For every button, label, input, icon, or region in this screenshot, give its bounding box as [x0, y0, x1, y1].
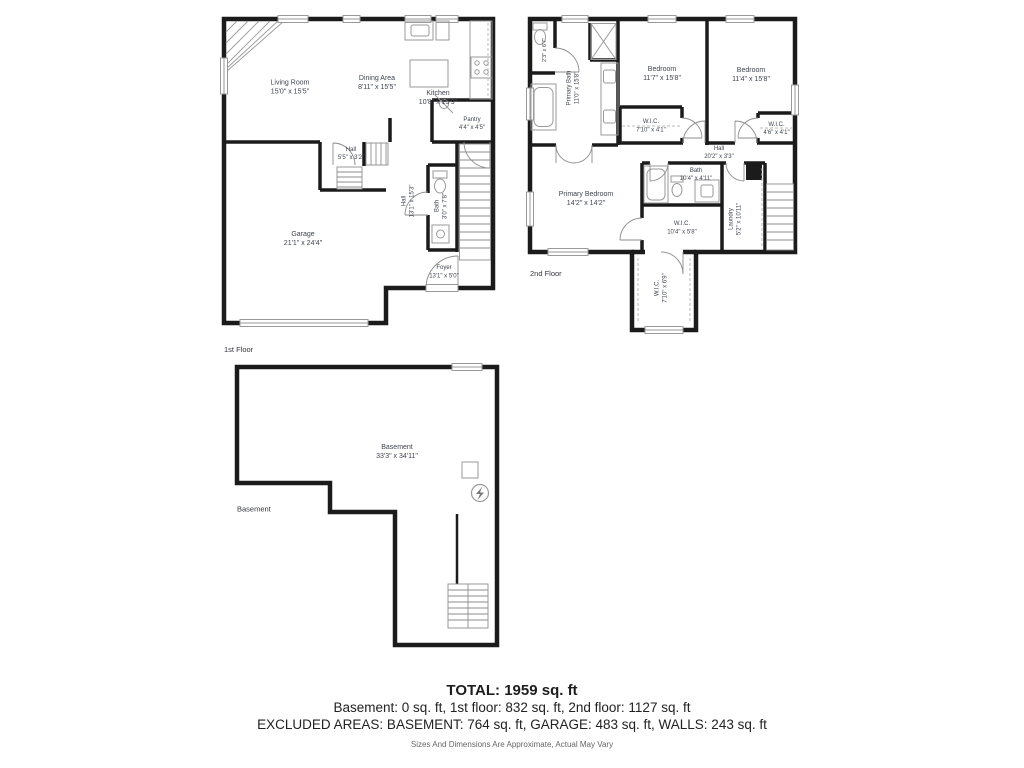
svg-text:7'10" x 6'9": 7'10" x 6'9"	[663, 273, 669, 303]
floor-areas: Basement: 0 sq. ft, 1st floor: 832 sq. f…	[0, 699, 1024, 716]
stairs-down-small	[337, 167, 362, 189]
svg-text:3'0" x 7'8": 3'0" x 7'8"	[443, 193, 449, 219]
second-floor-label: 2nd Floor	[530, 269, 562, 278]
toilet-tank-icon	[533, 23, 547, 30]
room-label-foyer-dims: 13'1" x 5'0"	[429, 274, 459, 280]
second-floor-plan: 2'3" x 6'7" Primary Bath 11'0" x 15'8" B…	[527, 16, 799, 334]
room-label-bath2-name: Bath	[690, 168, 702, 174]
stairs-up-small	[366, 143, 388, 165]
sink-icon	[604, 70, 616, 83]
svg-text:Hall: Hall	[402, 196, 408, 206]
room-label-wic2-dims: 4'6" x 4'1"	[763, 130, 789, 136]
hatch-area	[226, 21, 284, 72]
room-label-bedroom2-name: Bedroom	[737, 67, 766, 74]
room-label-wic4-vertical: W.I.C. 7'10" x 6'9"	[655, 273, 669, 303]
room-label-kitchen-name: Kitchen	[426, 90, 449, 97]
sink-icon	[604, 110, 616, 123]
svg-text:11'0" x 15'8": 11'0" x 15'8"	[575, 72, 581, 104]
room-label-pantry-dims: 4'4" x 4'5"	[459, 125, 485, 131]
room-label-hall2-name: Hall	[714, 146, 724, 152]
room-label-bedroom2-dims: 11'4" x 15'8"	[732, 76, 770, 83]
toilet-icon	[672, 184, 682, 197]
room-label-living-dims: 15'0" x 15'5"	[271, 89, 310, 96]
room-label-primarybedroom-dims: 14'2" x 14'2"	[567, 200, 606, 207]
room-label-wic3-dims: 10'4" x 5'8"	[667, 230, 697, 236]
room-label-garage-name: Garage	[291, 231, 314, 238]
room-label-primarybath-vertical: Primary Bath 11'0" x 15'8"	[567, 71, 581, 106]
svg-text:Primary Bath: Primary Bath	[567, 71, 573, 106]
basement-openings	[452, 364, 482, 371]
room-label-living-name: Living Room	[271, 80, 310, 87]
room-label-bath-vertical: Bath 3'0" x 7'8"	[435, 193, 449, 219]
stairs-second	[767, 184, 794, 250]
room-label-hallsmall-dims: 5'5" x 3'2"	[338, 155, 364, 161]
bath-sink-icon	[437, 230, 445, 238]
sink-icon	[411, 25, 429, 36]
room-label-hall2-dims: 20'2" x 3'3"	[704, 154, 734, 160]
stove-icon	[471, 57, 492, 78]
room-label-bedroom1-name: Bedroom	[648, 66, 677, 73]
room-label-wic1-dims: 7'10" x 4'1"	[636, 128, 666, 134]
room-label-wic3-name: W.I.C.	[674, 221, 691, 227]
room-label-dining-dims: 8'11" x 15'5"	[358, 84, 396, 91]
second-bath-fixtures	[644, 166, 719, 203]
stairs-main	[460, 144, 491, 260]
svg-text:Laundry: Laundry	[729, 208, 735, 230]
floor-plan-canvas: Living Room 15'0" x 15'5" Dining Area 8'…	[0, 0, 1024, 768]
total-area: TOTAL: 1959 sq. ft	[0, 682, 1024, 699]
basement-plan: Basement 33'3" x 34'11" Basement	[237, 364, 497, 646]
excluded-areas: EXCLUDED AREAS: BASEMENT: 764 sq. ft, GA…	[0, 716, 1024, 733]
room-label-garage-dims: 21'1" x 24'4"	[284, 240, 323, 247]
room-label-kitchen-dims: 10'8" x 15'9"	[419, 99, 458, 106]
svg-text:W.I.C.: W.I.C.	[655, 280, 661, 297]
svg-text:Bath: Bath	[435, 200, 441, 212]
room-label-basement-dims: 33'3" x 34'11"	[376, 453, 418, 460]
disclaimer-text: Sizes And Dimensions Are Approximate, Ac…	[0, 740, 1024, 749]
room-label-dining-name: Dining Area	[359, 75, 395, 82]
room-label-wic1-name: W.I.C.	[643, 119, 660, 125]
room-label-bedroom1-dims: 11'7" x 15'8"	[643, 75, 681, 82]
basement-floor-label: Basement	[237, 505, 272, 514]
first-floor-label: 1st Floor	[224, 345, 254, 354]
electrical-panel-icon	[472, 485, 489, 502]
toilet-tank-icon	[433, 171, 447, 178]
area-summary: TOTAL: 1959 sq. ft Basement: 0 sq. ft, 1…	[0, 682, 1024, 749]
basement-labels: Basement 33'3" x 34'11"	[376, 444, 418, 460]
entry-door-gap	[426, 285, 458, 292]
sink-icon	[701, 185, 713, 197]
room-label-basement-name: Basement	[381, 444, 413, 451]
room-label-primarybedroom-name: Primary Bedroom	[559, 191, 614, 198]
svg-text:5'2" x 10'11": 5'2" x 10'11"	[737, 203, 743, 235]
room-label-hall-vertical: Hall 13'1" x 15'3"	[402, 185, 416, 218]
svg-text:2'3" x 6'7": 2'3" x 6'7"	[542, 38, 548, 62]
stairs-basement	[448, 584, 488, 628]
room-label-wic2-name: W.I.C.	[768, 122, 785, 128]
room-label-laundry-vertical: Laundry 5'2" x 10'11"	[729, 203, 743, 235]
room-label-hallsmall-name: Hall	[346, 147, 356, 153]
room-label-wc-vertical: 2'3" x 6'7"	[542, 38, 548, 62]
svg-text:13'1" x 15'3": 13'1" x 15'3"	[410, 185, 416, 218]
shower-icon	[591, 24, 616, 60]
island	[410, 60, 448, 87]
chase-block	[746, 164, 762, 180]
room-label-bath2-dims: 10'4" x 4'11"	[680, 176, 712, 182]
toilet-icon	[435, 179, 446, 193]
floor-plan-page: Living Room 15'0" x 15'5" Dining Area 8'…	[0, 0, 1024, 768]
room-label-pantry-name: Pantry	[463, 117, 480, 123]
utility-box	[462, 462, 478, 478]
room-label-foyer-name: Foyer	[436, 265, 451, 271]
first-floor-plan: Living Room 15'0" x 15'5" Dining Area 8'…	[221, 16, 494, 355]
